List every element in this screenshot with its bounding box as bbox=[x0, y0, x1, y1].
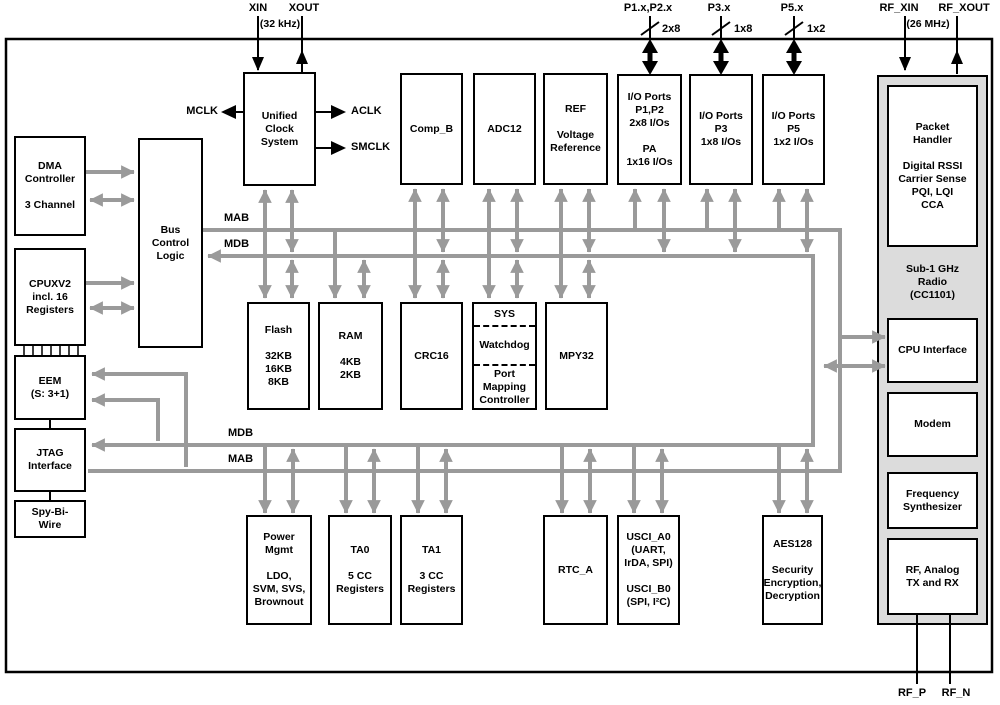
block-mpy32: MPY32 bbox=[545, 302, 608, 410]
block-cpu-interface: CPU Interface bbox=[887, 318, 978, 383]
block-spy-bi-wire: Spy-Bi- Wire bbox=[14, 500, 86, 538]
block-adc12: ADC12 bbox=[473, 73, 536, 185]
block-jtag-interface: JTAG Interface bbox=[14, 428, 86, 492]
block-rtc-a: RTC_A bbox=[543, 515, 608, 625]
pin-label-rf-n: RF_N bbox=[942, 687, 971, 700]
block-comp-b: Comp_B bbox=[400, 73, 463, 185]
sys-label: SYS bbox=[474, 304, 535, 325]
pin-label-rf-xout: RF_XOUT bbox=[938, 2, 989, 15]
block-flash: Flash 32KB 16KB 8KB bbox=[247, 302, 310, 410]
block-ram: RAM 4KB 2KB bbox=[318, 302, 383, 410]
pin-label-mclk: MCLK bbox=[160, 105, 218, 118]
pin-label-xout: XOUT bbox=[289, 2, 320, 15]
block-modem: Modem bbox=[887, 392, 978, 457]
bus-label-mdb-top: MDB bbox=[224, 238, 249, 251]
watchdog-label: Watchdog bbox=[474, 325, 535, 364]
block-ta1: TA1 3 CC Registers bbox=[400, 515, 463, 625]
block-io-ports-p5: I/O Ports P5 1x2 I/Os bbox=[762, 74, 825, 185]
block-power-mgmt: Power Mgmt LDO, SVM, SVS, Brownout bbox=[246, 515, 312, 625]
pin-label-p3: P3.x bbox=[708, 2, 731, 15]
pin-label-p1p2: P1.x,P2.x bbox=[624, 2, 672, 15]
block-diagram: DMA Controller 3 Channel CPUXV2 incl. 16… bbox=[0, 0, 1000, 705]
label-p1p2-width: 2x8 bbox=[662, 23, 680, 36]
bus-label-mab-bottom: MAB bbox=[228, 453, 253, 466]
pin-label-rf-xin: RF_XIN bbox=[879, 2, 918, 15]
block-frequency-synthesizer: Frequency Synthesizer bbox=[887, 472, 978, 529]
block-io-ports-p1p2: I/O Ports P1,P2 2x8 I/Os PA 1x16 I/Os bbox=[617, 74, 682, 185]
block-usci: USCI_A0 (UART, IrDA, SPI) USCI_B0 (SPI, … bbox=[617, 515, 680, 625]
block-ref: REF Voltage Reference bbox=[543, 73, 608, 185]
block-io-ports-p3: I/O Ports P3 1x8 I/Os bbox=[689, 74, 753, 185]
block-packet-handler: Packet Handler Digital RSSI Carrier Sens… bbox=[887, 85, 978, 247]
pin-label-smclk: SMCLK bbox=[351, 141, 390, 154]
block-ta0: TA0 5 CC Registers bbox=[328, 515, 392, 625]
block-dma-controller: DMA Controller 3 Channel bbox=[14, 136, 86, 236]
block-rf-analog: RF, Analog TX and RX bbox=[887, 538, 978, 615]
pin-label-aclk: ACLK bbox=[351, 105, 382, 118]
label-xtal-freq: (32 kHz) bbox=[260, 18, 300, 31]
block-aes128: AES128 Security Encryption, Decryption bbox=[762, 515, 823, 625]
bus-label-mdb-bottom: MDB bbox=[228, 427, 253, 440]
block-crc16: CRC16 bbox=[400, 302, 463, 410]
port-mapping-label: Port Mapping Controller bbox=[474, 364, 535, 408]
block-unified-clock-system: Unified Clock System bbox=[243, 72, 316, 186]
label-p3-width: 1x8 bbox=[734, 23, 752, 36]
label-p5-width: 1x2 bbox=[807, 23, 825, 36]
pin-label-rf-p: RF_P bbox=[898, 687, 926, 700]
pin-label-p5: P5.x bbox=[781, 2, 804, 15]
bus-label-mab-top: MAB bbox=[224, 212, 249, 225]
block-eem: EEM (S: 3+1) bbox=[14, 355, 86, 420]
label-rf-xtal-freq: (26 MHz) bbox=[906, 18, 949, 31]
pin-label-xin: XIN bbox=[249, 2, 267, 15]
block-sys: SYS Watchdog Port Mapping Controller bbox=[472, 302, 537, 410]
block-cpuxv2: CPUXV2 incl. 16 Registers bbox=[14, 248, 86, 346]
block-bus-control-logic: Bus Control Logic bbox=[138, 138, 203, 348]
radio-label: Sub-1 GHz Radio (CC1101) bbox=[877, 252, 988, 312]
